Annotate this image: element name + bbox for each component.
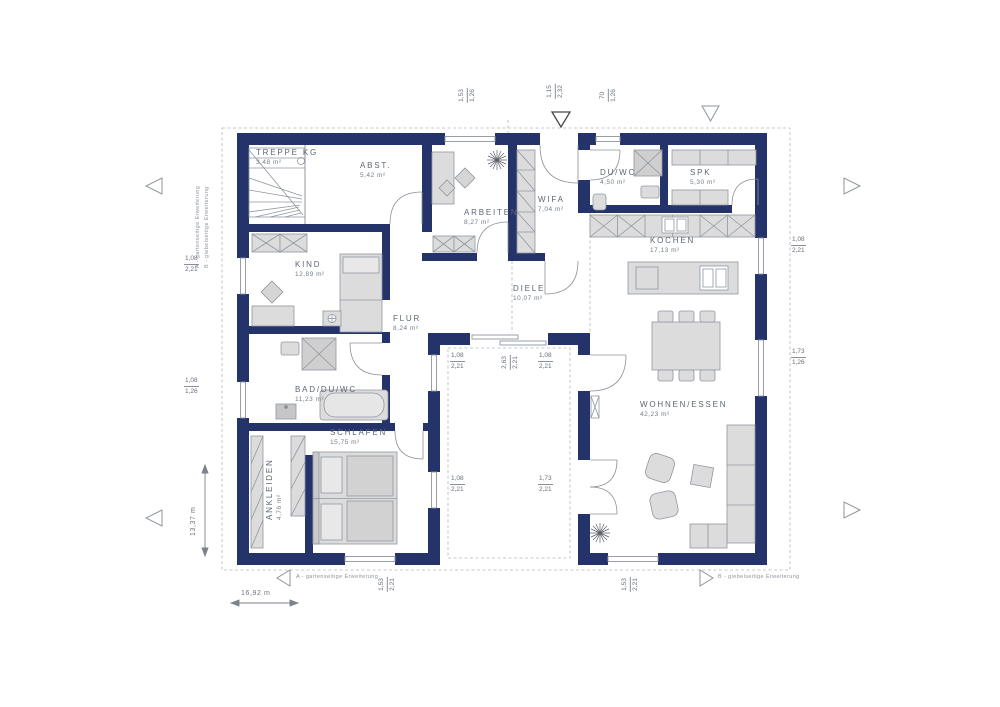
floor-plan-page: TREPPE KG 3,48 m² ABST. 5,42 m² ARBEITEN… [0, 0, 1000, 707]
dim-label-bottom-1: 1,532,21 [379, 577, 396, 592]
left-upper-triangle-icon [146, 178, 162, 194]
room-label-treppe: TREPPE KG 3,48 m² [256, 149, 318, 166]
room-label-schlafen: SCHLAFEN 15,75 m² [330, 429, 387, 446]
dim-label-left-2: 1,081,26 [184, 378, 199, 395]
entrance-triangle-icon [552, 112, 570, 127]
room-label-bad: BAD/DU/WC 11,23 m² [295, 386, 357, 403]
right-lower-triangle-icon [844, 502, 860, 518]
room-label-arbeiten: ARBEITEN 8,27 m² [464, 209, 518, 226]
dim-label-top-1: 1,531,26 [459, 88, 476, 103]
room-label-wifa: WIFA 7,04 m² [538, 196, 565, 213]
right-upper-triangle-icon [844, 178, 860, 194]
dim-label-top-entrance: 1,152,32 [547, 84, 564, 99]
dim-label-courtyard-tr: 1,082,21 [538, 353, 553, 370]
total-height-label: 13,37 m [190, 507, 197, 537]
top-right-triangle-icon [702, 106, 719, 121]
room-label-flur: FLUR 8,24 m² [393, 315, 421, 332]
room-label-kochen: KOCHEN 17,13 m² [650, 237, 695, 254]
note-a-triangle-icon [277, 570, 290, 586]
room-label-wohnen: WOHNEN/ESSEN 42,23 m² [640, 401, 727, 418]
room-label-diele: DIELE 10,07 m² [513, 285, 545, 302]
left-lower-triangle-icon [146, 510, 162, 526]
dim-label-courtyard-br: 1,732,21 [538, 476, 553, 493]
room-label-kind: KIND 12,89 m² [295, 261, 325, 278]
dim-label-courtyard-tl: 1,082,21 [450, 353, 465, 370]
dim-label-right-1: 1,082,21 [791, 237, 806, 254]
floor-plan-drawing [0, 0, 1000, 707]
dim-label-right-2: 1,731,26 [791, 349, 806, 366]
side-note-a-label: A - gartenseitige Erweiterung [196, 186, 202, 268]
note-b-label: B - giebelseitige Erweiterung [718, 575, 800, 581]
note-b-triangle-icon [700, 570, 713, 586]
measure-lines [202, 465, 298, 606]
room-label-ankleiden: ANKLEIDEN 4,76 m² [266, 458, 283, 520]
dim-label-bottom-2: 1,532,21 [622, 577, 639, 592]
note-a-label: A - gartenseitige Erweiterung [296, 575, 378, 581]
room-label-duwc: DU/WC 4,50 m² [600, 169, 636, 186]
dim-label-courtyard-bl: 1,082,21 [450, 476, 465, 493]
room-label-abst: ABST. 5,42 m² [360, 162, 391, 179]
dim-label-courtyard-mid: 2,632,21 [502, 355, 519, 370]
room-label-spk: SPK 5,30 m² [690, 169, 716, 186]
total-width-label: 16,92 m [241, 590, 271, 597]
dim-label-top-2: 701,26 [600, 89, 617, 102]
side-note-b-label: B - giebelseitige Erweiterung [205, 186, 211, 268]
